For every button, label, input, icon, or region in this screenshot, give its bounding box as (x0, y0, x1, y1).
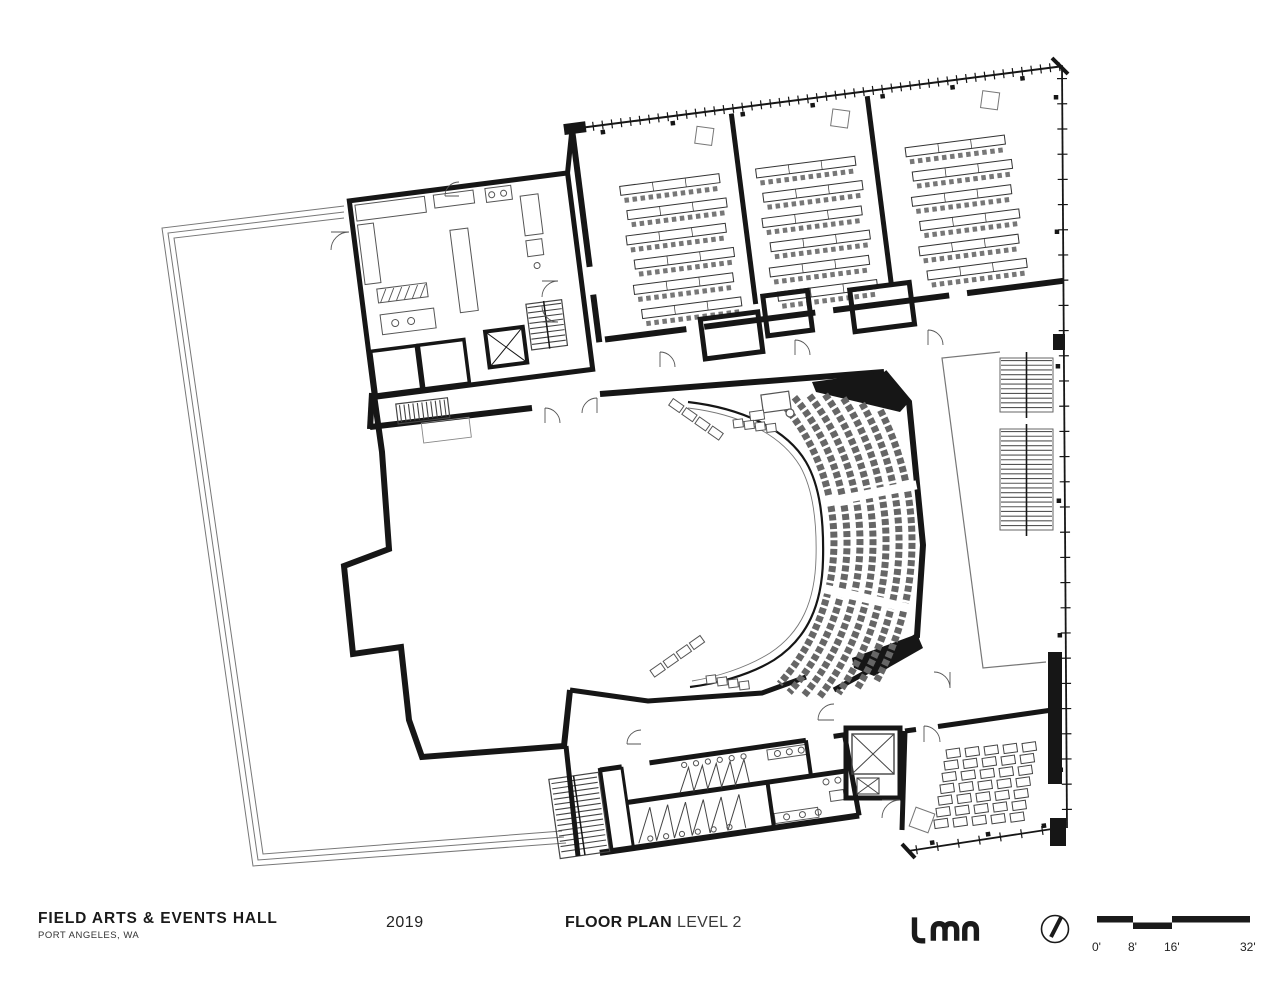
scale-label-32: 32' (1240, 940, 1256, 954)
classroom-desks (934, 742, 1037, 829)
drawing-year: 2019 (386, 914, 424, 932)
floor-plan-drawing (0, 0, 1280, 906)
banquet-tables (619, 134, 1028, 324)
sheet-title: FLOOR PLANLEVEL 2 (565, 914, 742, 932)
north-arrow-icon (1036, 914, 1076, 959)
east-curtain-wall (1048, 58, 1068, 846)
lmn-logo (910, 912, 980, 953)
kitchen-elevator (485, 327, 527, 368)
kitchen (344, 129, 603, 397)
scale-label-8: 8' (1128, 940, 1137, 954)
kitchen-stair (526, 299, 568, 351)
project-title: FIELD ARTS & EVENTS HALL (38, 910, 278, 928)
classroom (846, 710, 1065, 858)
sheet-title-main: FLOOR PLAN (565, 914, 672, 931)
scale-label-0: 0' (1092, 940, 1101, 954)
banquet-hall-and-kitchen (343, 60, 1094, 401)
atrium-grand-stair (942, 352, 1053, 668)
project-location: PORT ANGELES, WA (38, 930, 278, 941)
sheet-title-sub: LEVEL 2 (677, 914, 742, 931)
scale-bar: 0' 8' 16' 32' (1090, 914, 1265, 939)
restrooms (548, 732, 859, 858)
project-identity: FIELD ARTS & EVENTS HALL PORT ANGELES, W… (38, 910, 278, 941)
scale-label-16: 16' (1164, 940, 1180, 954)
theater-balcony (344, 372, 923, 757)
titleblock: FIELD ARTS & EVENTS HALL PORT ANGELES, W… (0, 906, 1280, 966)
hall-diamonds (693, 88, 1002, 149)
